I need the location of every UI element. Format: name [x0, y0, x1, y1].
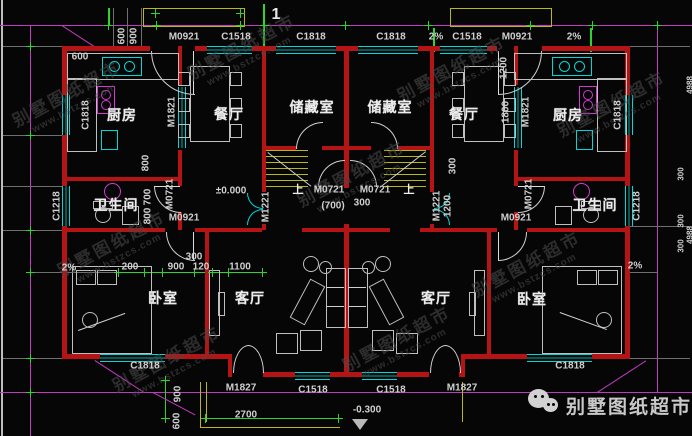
code-label-m1827: M1827 — [447, 383, 478, 394]
code-label-c1518: C1518 — [298, 385, 327, 396]
chair — [504, 124, 516, 138]
code-label-m1221: M1221 — [261, 192, 272, 223]
code-label-m0921: M0921 — [169, 213, 200, 224]
level-label-porch: -0.300 — [353, 405, 381, 416]
door-leaf — [498, 232, 499, 260]
wall-segment — [302, 228, 390, 232]
code-label-c1818: C1818 — [296, 32, 325, 43]
dim-tick — [26, 131, 35, 140]
wall-segment — [195, 46, 207, 51]
wall-segment — [625, 226, 630, 358]
level-marker-triangle — [352, 419, 368, 430]
room-label-living-right: 客厅 — [421, 288, 451, 308]
sheet-edge-line — [1, 0, 3, 436]
tv — [469, 292, 476, 316]
room-label-bedroom-left: 卧室 — [148, 288, 178, 308]
fridge — [576, 130, 593, 150]
wall-segment — [62, 228, 165, 232]
wall-segment — [263, 372, 295, 377]
wall-segment — [62, 226, 67, 358]
level-label-main: ±0.000 — [216, 186, 247, 197]
room-label-storage-left: 储藏室 — [290, 97, 335, 117]
code-label-m0721: M0721 — [165, 179, 176, 210]
storage-door-arc-right — [371, 122, 398, 149]
dim-label: 800 — [143, 208, 154, 225]
extension-line — [630, 46, 690, 47]
sofa-seam — [326, 306, 344, 307]
sink-bowl — [574, 61, 585, 72]
storage-door-arc-left — [296, 122, 323, 149]
window-c1218-left — [62, 186, 70, 226]
sink-bowl — [109, 61, 120, 72]
code-label-c1518: C1518 — [221, 32, 250, 43]
wall-segment — [322, 146, 344, 150]
pillow — [577, 270, 597, 285]
code-label-m0921: M0921 — [502, 32, 533, 43]
extension-line — [3, 186, 62, 187]
plant — [362, 261, 375, 274]
dim-tick — [26, 388, 35, 397]
dim-label: 2700 — [235, 410, 257, 421]
extension-line — [630, 358, 690, 359]
sink-bowl — [124, 61, 135, 72]
dim-tick — [588, 21, 597, 30]
slope-label: 2% — [429, 32, 443, 43]
wall-segment — [349, 146, 371, 150]
wall-segment — [487, 46, 497, 51]
chaise — [290, 279, 326, 326]
living-double-door-right — [445, 345, 461, 373]
window-c1518-bottom-left — [295, 372, 330, 380]
code-label-m1221: M1221 — [432, 191, 443, 222]
code-label-c1818: C1818 — [376, 32, 405, 43]
armchair — [396, 333, 418, 354]
code-label-m0921: M0921 — [501, 213, 532, 224]
dim-label: 800 — [141, 155, 152, 172]
code-label-c1218: C1218 — [632, 191, 643, 220]
dim-tick — [341, 21, 350, 30]
room-label-dining-left: 餐厅 — [214, 104, 244, 124]
stair-up-label-right: 上 — [404, 181, 415, 197]
code-label-c1818: C1818 — [130, 361, 159, 372]
dim-tick — [653, 21, 662, 30]
wall-segment — [592, 354, 630, 359]
slope-label: 2% — [567, 32, 581, 43]
plant — [319, 261, 332, 274]
dim-tick — [26, 226, 35, 235]
room-label-kitchen-left: 厨房 — [107, 105, 137, 125]
footer-brand: 别墅图纸超市 — [566, 392, 692, 419]
armchair — [372, 330, 394, 351]
dim-label: 300 — [677, 239, 686, 252]
wechat-icon — [528, 386, 564, 422]
code-label-m1821: M1821 — [521, 97, 532, 128]
window-c1818-top-left — [276, 46, 336, 54]
chair — [178, 124, 190, 138]
living-double-door-left — [248, 345, 264, 373]
dim-tick — [151, 9, 160, 18]
wall-segment — [330, 372, 362, 377]
dim-tick — [26, 42, 35, 51]
wall-segment — [464, 354, 527, 359]
canopy-outline-right — [450, 8, 552, 27]
dim-label: 300 — [677, 167, 686, 180]
dim-tick — [424, 21, 433, 30]
dim-label: 900 — [129, 28, 140, 45]
dim-tick — [526, 21, 535, 30]
dim-label: 300 — [186, 252, 203, 263]
kitchen-sink — [102, 57, 142, 76]
code-label-m1821: M1821 — [167, 97, 178, 128]
axis-label-1: 1 — [272, 6, 281, 24]
porch-step-line — [200, 427, 340, 428]
room-label-bathroom-right: 卫生间 — [573, 195, 618, 215]
chair — [452, 72, 464, 86]
dim-tick — [26, 354, 35, 363]
room-label-kitchen-right: 厨房 — [553, 105, 583, 125]
dim-tick — [201, 414, 210, 423]
dim-label: 600 — [117, 28, 128, 45]
stair-up-label-left: 上 — [293, 181, 304, 197]
dim-label: 300 — [354, 198, 371, 209]
dim-label: 1100 — [229, 262, 251, 273]
room-label-dining-right: 餐厅 — [449, 104, 479, 124]
dim-label: 900 — [173, 386, 184, 403]
extension-line — [113, 8, 114, 46]
window-c1818-top-right — [358, 46, 418, 54]
dim-label: 600 — [72, 52, 89, 63]
wall-segment — [195, 228, 262, 232]
wall-segment — [487, 232, 491, 354]
dim-label: 600 — [172, 413, 183, 430]
wall-segment — [527, 228, 630, 232]
shower-tray — [555, 206, 572, 225]
wall-segment — [420, 228, 497, 232]
dim-label: 1200 — [499, 57, 510, 79]
code-label-c1218: C1218 — [52, 191, 63, 220]
room-label-living-left: 客厅 — [235, 288, 265, 308]
cad-floor-plan: 别墅图纸超市 www.bstzcs.com 别墅图纸超市 www.bstzcs.… — [0, 0, 692, 436]
chair — [178, 98, 190, 112]
kitchen-sink — [552, 57, 592, 76]
room-label-storage-right: 储藏室 — [368, 97, 413, 117]
leader-line — [61, 25, 94, 47]
pillow — [598, 270, 618, 285]
armchair — [300, 330, 322, 351]
dim-label: 1200 — [443, 195, 454, 217]
wall-segment — [62, 177, 178, 181]
dim-tick — [152, 21, 161, 30]
code-label-c1818: C1818 — [555, 361, 584, 372]
dim-label: 700 — [143, 189, 154, 206]
armchair — [276, 333, 298, 354]
dim-tick — [140, 268, 149, 277]
chair — [452, 124, 464, 138]
dim-label: 120 — [193, 262, 210, 273]
sofa — [348, 268, 368, 328]
code-label-m0721: M0721 — [524, 179, 535, 210]
dim-label: 1800 — [501, 101, 512, 123]
sofa — [326, 268, 346, 328]
wall-segment — [228, 372, 232, 377]
dim-tick — [161, 376, 170, 385]
wall-segment — [62, 354, 100, 359]
dim-tick — [236, 9, 245, 18]
extension-line — [630, 272, 657, 273]
chair — [230, 72, 242, 86]
dim-label: 4988 — [686, 226, 692, 244]
chaise — [369, 279, 405, 326]
dim-tick — [236, 21, 245, 30]
living-double-door-right — [430, 345, 446, 373]
dim-tick — [26, 268, 35, 277]
chair — [178, 72, 190, 86]
hall-door-arc-left — [318, 160, 345, 187]
dim-tick — [258, 268, 267, 277]
chair — [230, 124, 242, 138]
wall-segment — [542, 46, 630, 51]
dimension-line — [205, 418, 340, 419]
leader-line — [597, 360, 646, 392]
room-label-bathroom-left: 卫生间 — [94, 195, 139, 215]
burner — [583, 100, 593, 110]
dim-label: 300 — [448, 158, 459, 175]
wall-segment — [178, 150, 182, 186]
code-label-m0921: M0921 — [169, 32, 200, 43]
window-c1518-top-right — [440, 46, 487, 54]
slope-label: 2% — [628, 261, 642, 272]
code-label-c1818: C1818 — [613, 100, 624, 129]
boundary-line-right — [657, 25, 658, 392]
pillow — [76, 270, 96, 285]
code-label-m0721: M0721 — [314, 185, 345, 196]
hall-door-arc-right — [350, 160, 377, 187]
fridge — [101, 130, 118, 150]
code-label-c1518: C1518 — [376, 385, 405, 396]
wall-segment — [165, 354, 228, 359]
dim-tick — [104, 21, 113, 30]
sink-bowl — [559, 61, 570, 72]
code-label-m1827: M1827 — [226, 383, 257, 394]
dim-label: 200 — [122, 262, 139, 273]
plant — [375, 256, 391, 272]
code-label-c1818: C1818 — [81, 100, 92, 129]
bedroom-door-arc-right — [498, 232, 527, 261]
dim-tick — [161, 414, 170, 423]
dim-label: (700) — [321, 201, 344, 212]
room-label-bedroom-right: 卧室 — [517, 289, 547, 309]
living-double-door-left — [233, 345, 249, 373]
code-label-m0721: M0721 — [360, 185, 391, 196]
plant — [303, 256, 319, 272]
door-m1821-left — [178, 87, 186, 148]
sofa-seam — [326, 287, 344, 288]
extension-line — [141, 8, 142, 46]
wall-segment — [430, 46, 434, 192]
dim-tick — [260, 21, 269, 30]
wall-segment — [397, 372, 429, 377]
dim-label: 4988 — [686, 76, 692, 94]
dim-label: 900 — [168, 262, 185, 273]
sofa-seam — [348, 306, 366, 307]
code-label-c1518: C1518 — [452, 32, 481, 43]
window-c1518-top-left — [207, 46, 252, 54]
wall-segment — [418, 46, 440, 51]
window-c1518-bottom-right — [362, 372, 397, 380]
dim-tick — [334, 414, 343, 423]
burner — [583, 90, 593, 100]
wall-segment — [62, 46, 150, 51]
slope-label: 2% — [62, 263, 76, 274]
sofa-seam — [348, 287, 366, 288]
dim-label: 300 — [677, 214, 686, 227]
burner — [101, 90, 111, 100]
dim-tick — [158, 268, 167, 277]
tv — [218, 292, 225, 316]
